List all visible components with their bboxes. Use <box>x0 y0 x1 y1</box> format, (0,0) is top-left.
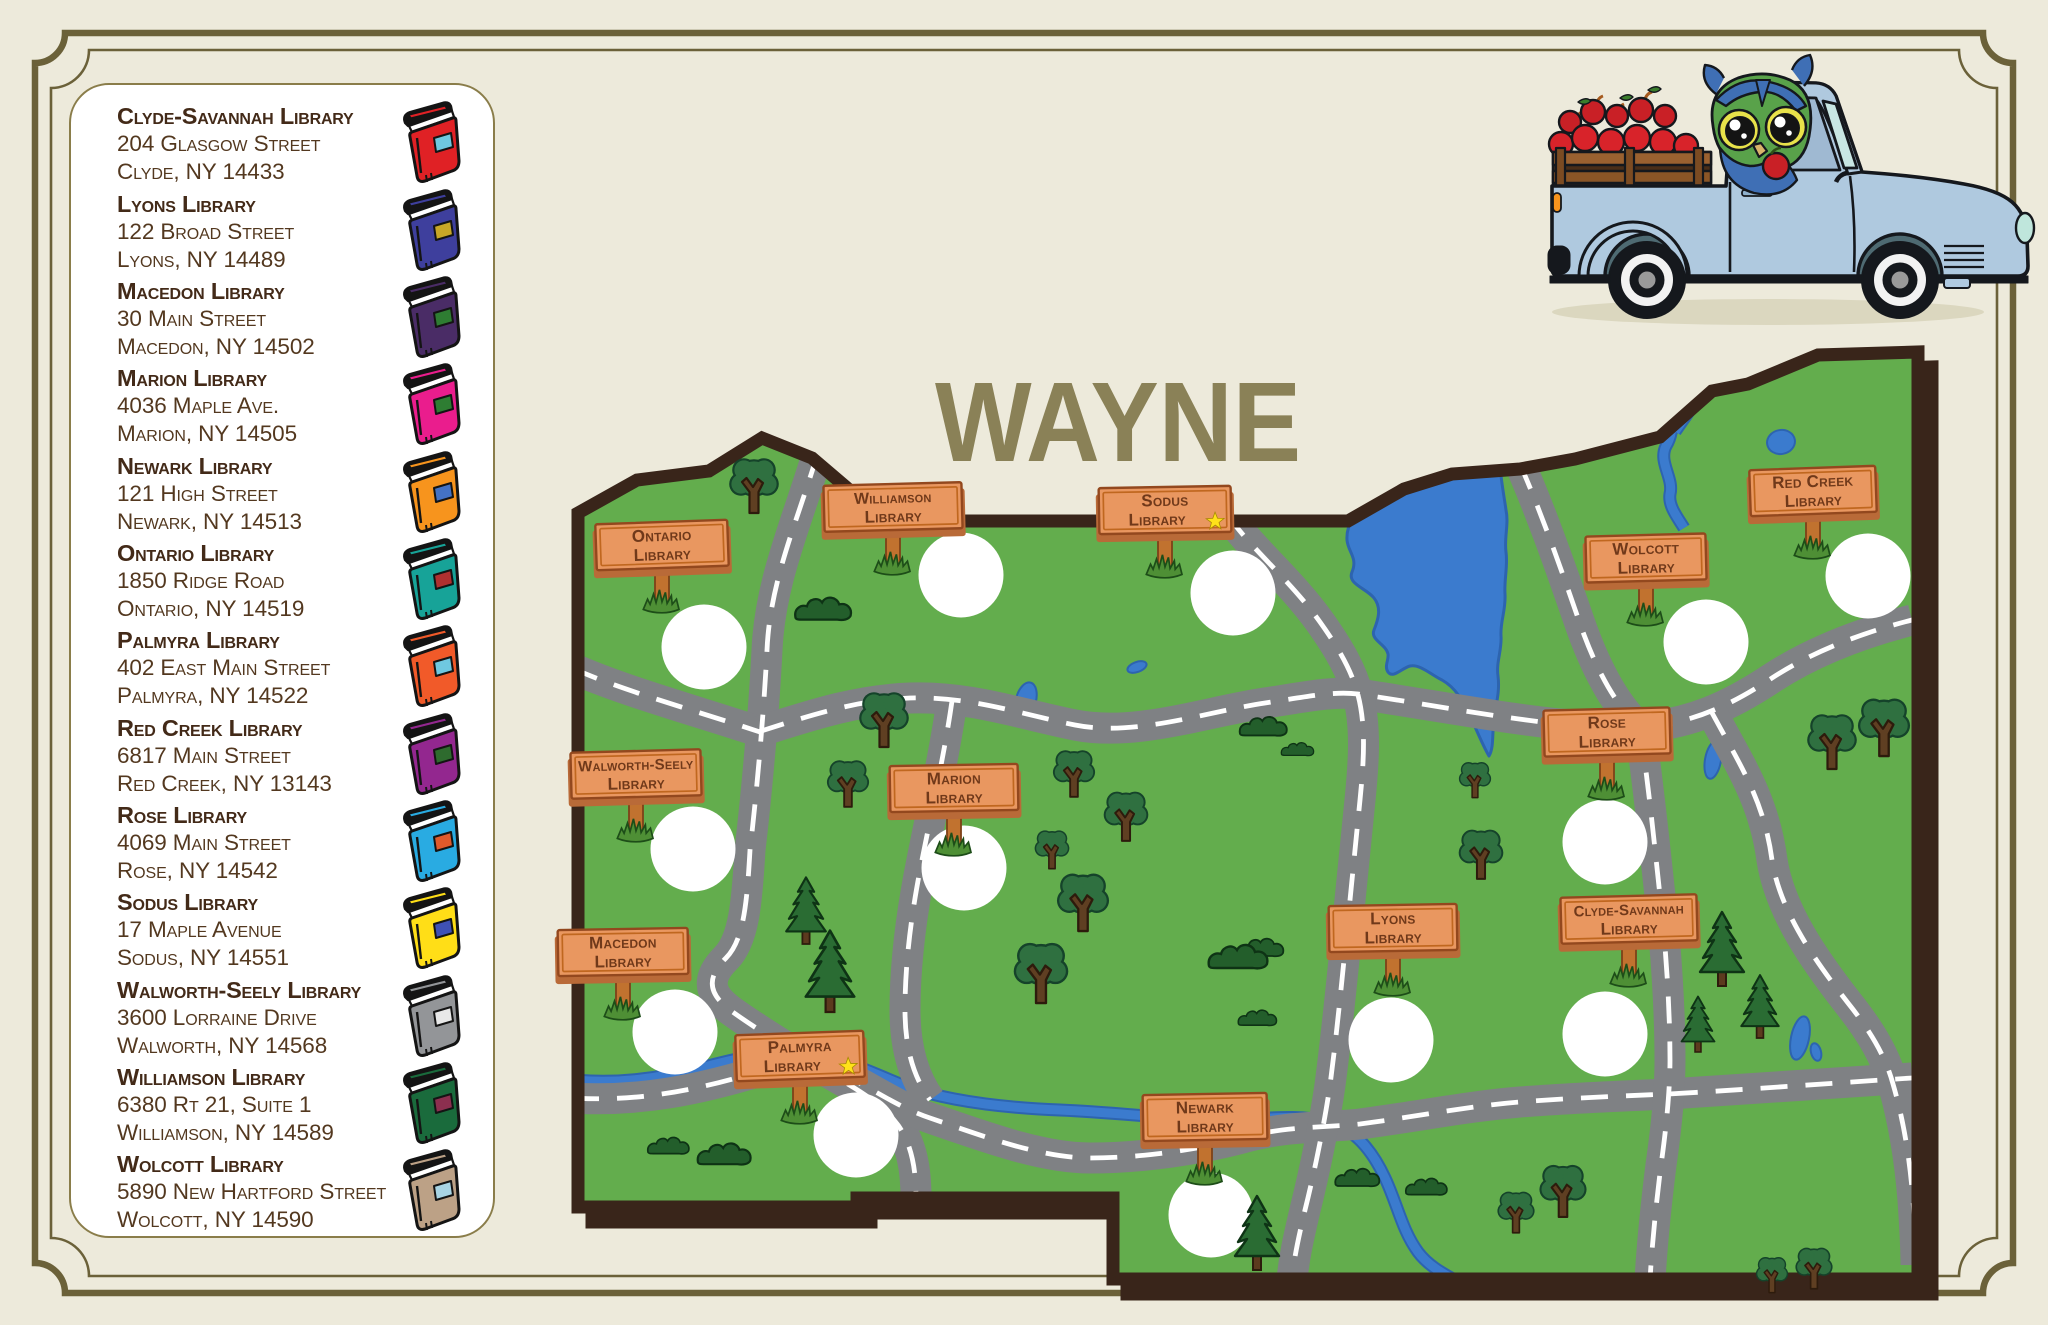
svg-text:Williamson: Williamson <box>854 489 932 508</box>
svg-text:Clyde-Savannah: Clyde-Savannah <box>1573 901 1684 921</box>
svg-text:Macedon: Macedon <box>589 932 657 952</box>
svg-text:WAYNE: WAYNE <box>935 359 1301 485</box>
svg-text:Lyons: Lyons <box>1370 909 1416 929</box>
svg-text:Library: Library <box>633 544 691 565</box>
svg-text:Library: Library <box>1600 918 1658 938</box>
svg-text:Newark: Newark <box>1176 1097 1235 1117</box>
svg-text:Library: Library <box>864 506 922 526</box>
svg-text:Library: Library <box>607 773 665 793</box>
svg-text:Library: Library <box>925 787 983 807</box>
svg-text:Library: Library <box>594 951 652 971</box>
svg-text:Library: Library <box>1364 927 1422 947</box>
svg-text:Palmyra: Palmyra <box>767 1036 832 1057</box>
svg-text:Marion: Marion <box>927 769 981 789</box>
svg-text:Walworth-Seely: Walworth-Seely <box>578 755 694 775</box>
svg-text:Rose: Rose <box>1587 713 1626 733</box>
svg-text:Sodus: Sodus <box>1141 491 1188 511</box>
svg-text:Library: Library <box>1128 510 1186 530</box>
svg-text:Library: Library <box>1617 557 1675 577</box>
svg-text:Wolcott: Wolcott <box>1612 538 1680 559</box>
svg-text:Library: Library <box>763 1055 821 1076</box>
svg-text:Library: Library <box>1176 1116 1234 1136</box>
svg-text:Ontario: Ontario <box>631 525 691 546</box>
svg-text:Library: Library <box>1784 490 1842 511</box>
svg-text:Library: Library <box>1578 731 1636 751</box>
